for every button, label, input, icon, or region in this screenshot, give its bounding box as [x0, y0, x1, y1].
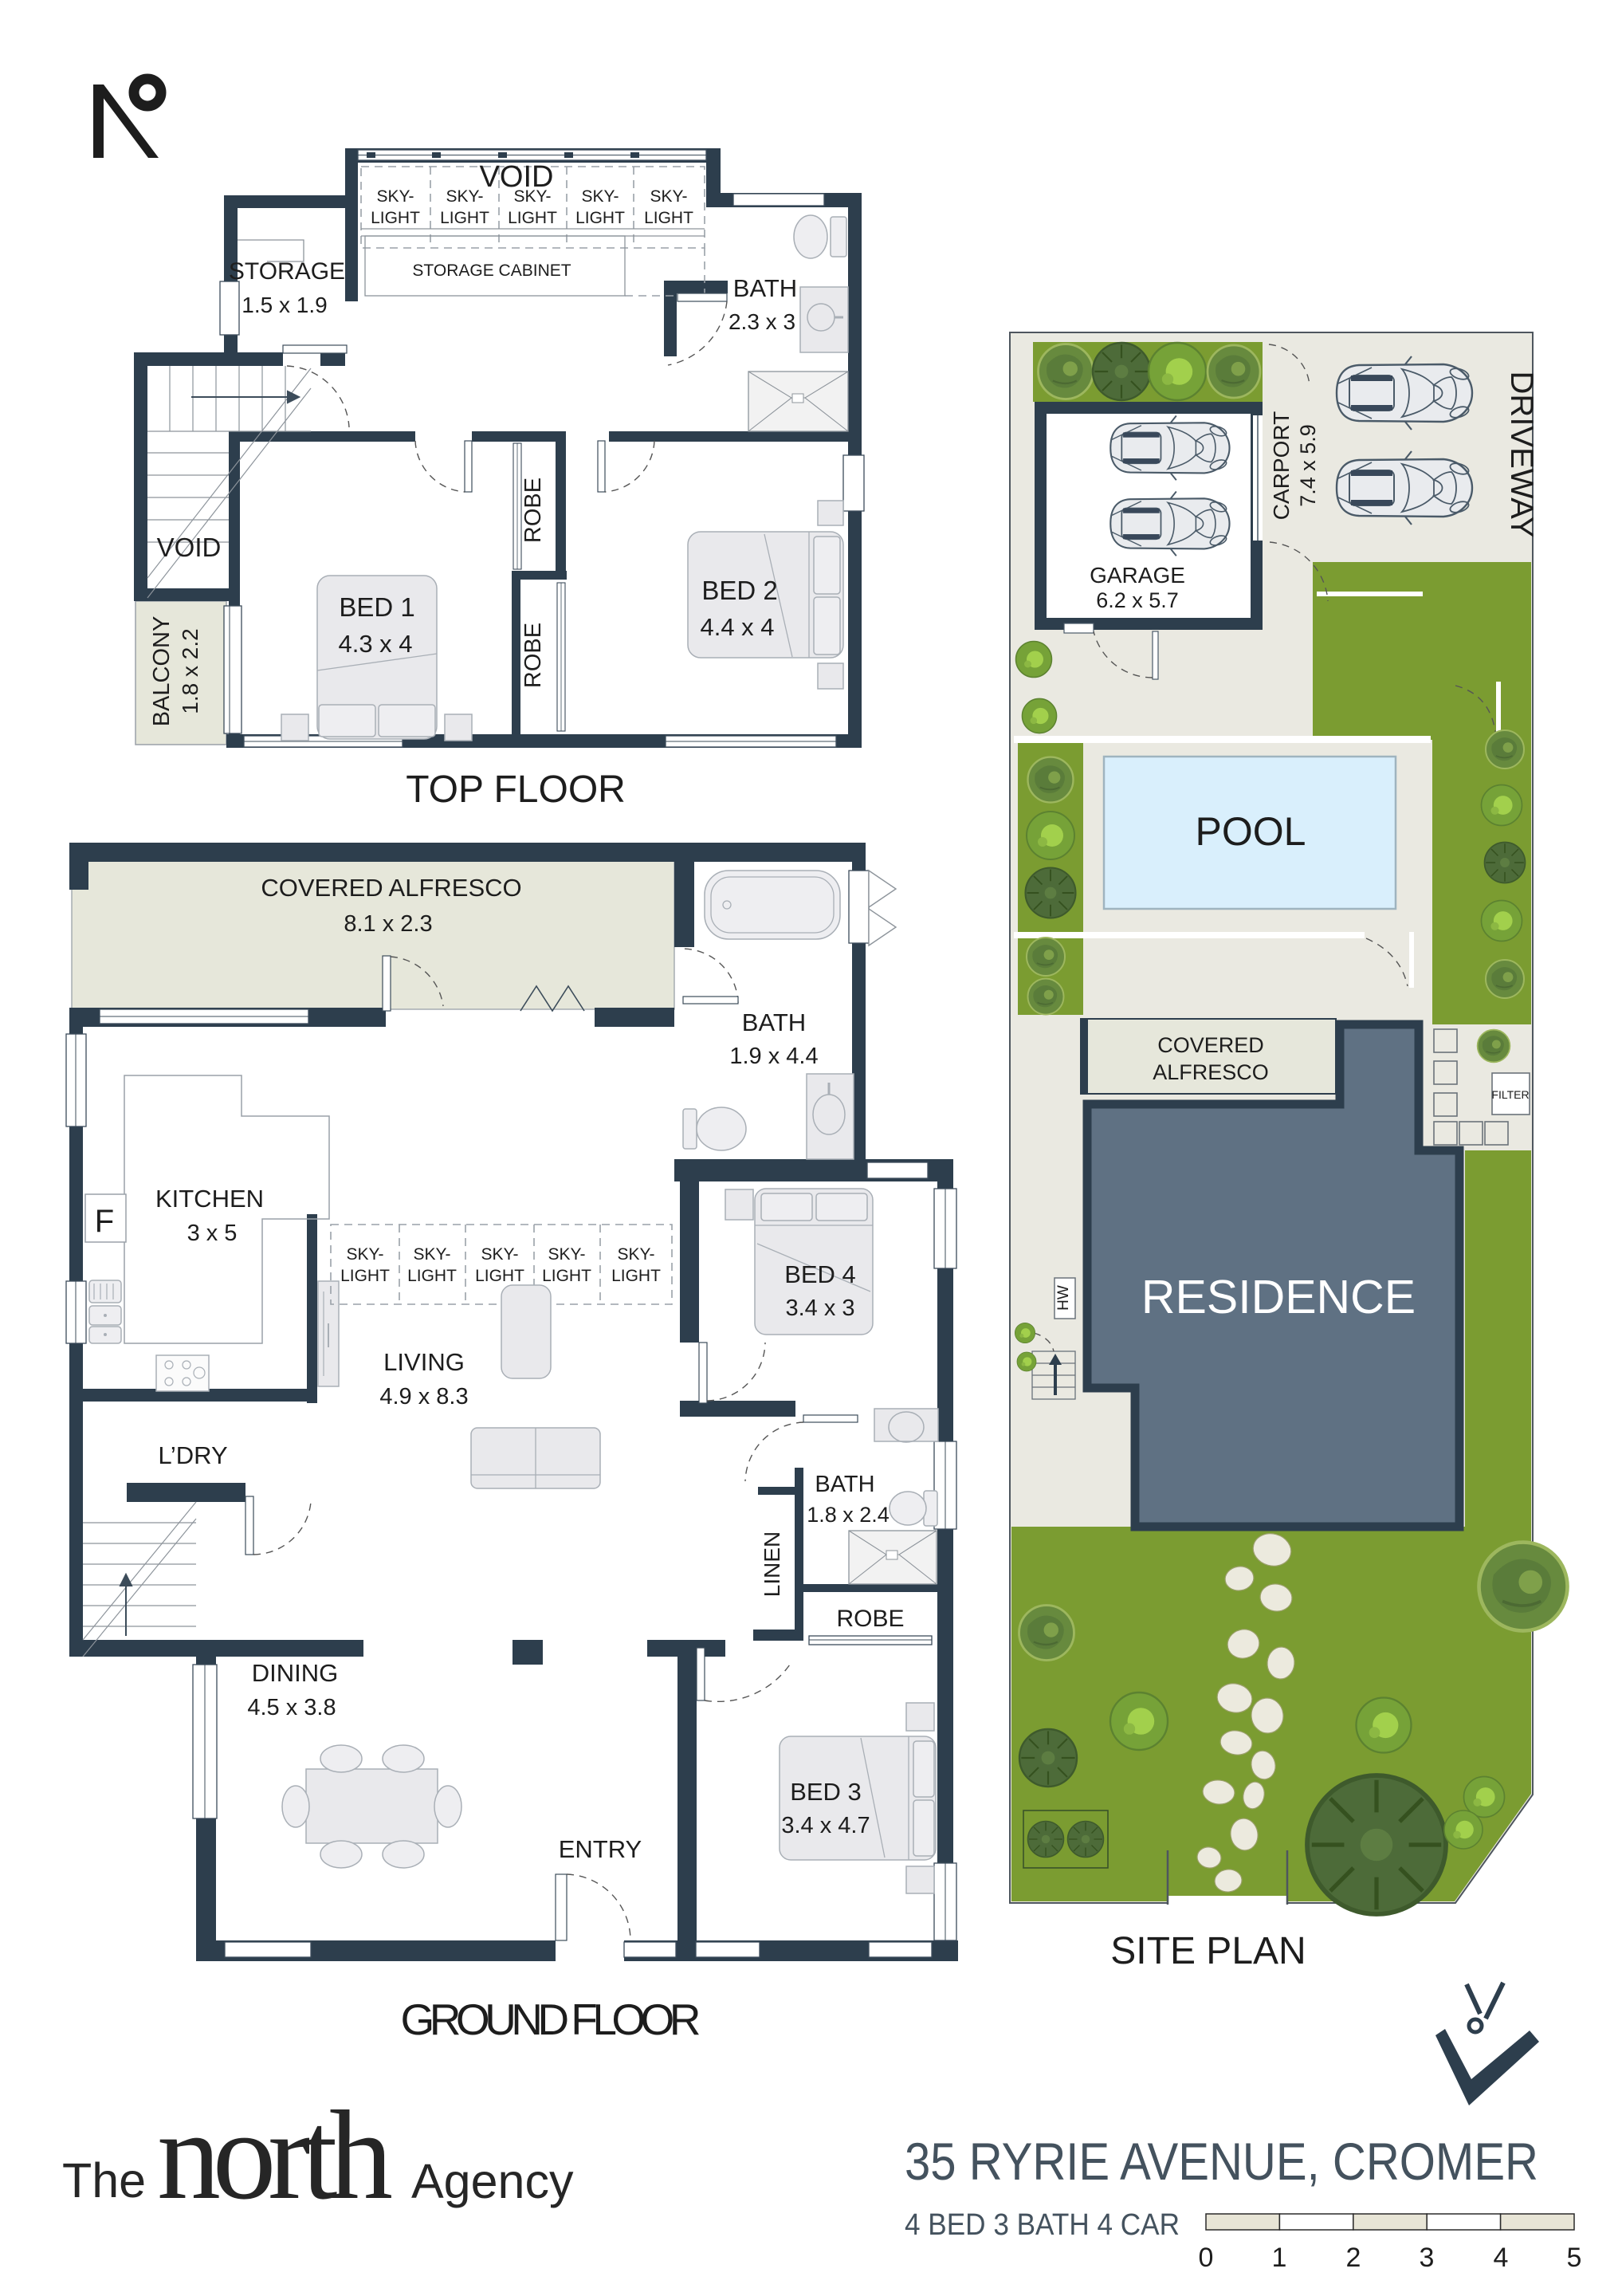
svg-text:LIGHT: LIGHT: [371, 209, 420, 227]
svg-text:FILTER: FILTER: [1491, 1088, 1529, 1101]
svg-text:VOID: VOID: [157, 533, 222, 562]
svg-text:LIVING: LIVING: [383, 1348, 465, 1376]
svg-text:1: 1: [1272, 2243, 1287, 2273]
svg-text:4: 4: [1494, 2243, 1509, 2273]
svg-text:BED 1: BED 1: [339, 592, 414, 622]
svg-text:COVERED ALFRESCO: COVERED ALFRESCO: [261, 874, 521, 902]
svg-text:6.2 x 5.7: 6.2 x 5.7: [1096, 588, 1179, 612]
svg-text:LIGHT: LIGHT: [340, 1267, 390, 1285]
svg-text:4.3 x 4: 4.3 x 4: [338, 630, 412, 658]
svg-text:0: 0: [1199, 2243, 1214, 2273]
svg-text:2: 2: [1346, 2243, 1361, 2273]
svg-text:SKY-: SKY-: [650, 187, 687, 206]
svg-text:SKY-: SKY-: [376, 187, 414, 206]
svg-text:The: The: [62, 2153, 146, 2208]
svg-text:SITE PLAN: SITE PLAN: [1110, 1930, 1306, 1972]
svg-text:ROBE: ROBE: [836, 1606, 904, 1632]
svg-text:7.4 x 5.9: 7.4 x 5.9: [1296, 424, 1320, 507]
svg-text:BED 3: BED 3: [790, 1778, 862, 1806]
svg-text:GROUND FLOOR: GROUND FLOOR: [401, 1995, 701, 2044]
svg-text:BED 4: BED 4: [784, 1260, 856, 1288]
svg-text:HW: HW: [1055, 1285, 1072, 1311]
svg-text:BATH: BATH: [742, 1008, 806, 1036]
svg-text:STORAGE: STORAGE: [229, 258, 345, 285]
svg-text:4.4 x 4: 4.4 x 4: [700, 613, 774, 641]
svg-text:Agency: Agency: [411, 2154, 574, 2208]
svg-text:1.8 x 2.4: 1.8 x 2.4: [807, 1503, 890, 1527]
svg-text:DINING: DINING: [252, 1659, 339, 1687]
svg-text:8.1 x 2.3: 8.1 x 2.3: [344, 911, 432, 937]
svg-text:ENTRY: ENTRY: [559, 1835, 642, 1863]
svg-text:RESIDENCE: RESIDENCE: [1141, 1271, 1416, 1323]
svg-text:3.4 x 4.7: 3.4 x 4.7: [781, 1813, 870, 1838]
svg-text:4.5 x 3.8: 4.5 x 3.8: [247, 1695, 336, 1720]
svg-text:SKY-: SKY-: [513, 187, 551, 206]
svg-text:CARPORT: CARPORT: [1269, 411, 1294, 520]
svg-text:GARAGE: GARAGE: [1090, 563, 1185, 588]
svg-text:LIGHT: LIGHT: [407, 1267, 457, 1285]
svg-text:LIGHT: LIGHT: [575, 209, 625, 227]
svg-text:SKY-: SKY-: [446, 187, 483, 206]
svg-text:LINEN: LINEN: [760, 1531, 784, 1597]
svg-text:SKY-: SKY-: [413, 1245, 450, 1264]
svg-text:35 RYRIE AVENUE, CROMER: 35 RYRIE AVENUE, CROMER: [905, 2132, 1538, 2191]
svg-text:5: 5: [1567, 2243, 1582, 2273]
svg-text:SKY-: SKY-: [481, 1245, 518, 1264]
svg-text:LIGHT: LIGHT: [644, 209, 693, 227]
svg-text:STORAGE CABINET: STORAGE CABINET: [412, 261, 571, 280]
svg-text:TOP FLOOR: TOP FLOOR: [406, 769, 626, 811]
svg-text:BALCONY: BALCONY: [149, 616, 175, 727]
svg-text:LIGHT: LIGHT: [475, 1267, 524, 1285]
svg-text:3: 3: [1420, 2243, 1435, 2273]
svg-text:4 BED 3 BATH 4 CAR: 4 BED 3 BATH 4 CAR: [905, 2208, 1180, 2242]
svg-text:LIGHT: LIGHT: [440, 209, 489, 227]
svg-text:3.4 x 3: 3.4 x 3: [785, 1295, 854, 1321]
svg-text:SKY-: SKY-: [346, 1245, 383, 1264]
svg-text:DRIVEWAY: DRIVEWAY: [1504, 372, 1539, 538]
svg-text:BED 2: BED 2: [701, 576, 777, 605]
svg-text:LIGHT: LIGHT: [611, 1267, 661, 1285]
svg-text:SKY-: SKY-: [581, 187, 619, 206]
svg-text:SKY-: SKY-: [548, 1245, 585, 1264]
svg-text:4.9 x 8.3: 4.9 x 8.3: [379, 1384, 468, 1409]
svg-text:1.8 x 2.2: 1.8 x 2.2: [178, 628, 202, 714]
svg-text:COVERED: COVERED: [1157, 1033, 1264, 1057]
svg-text:1.5 x 1.9: 1.5 x 1.9: [242, 293, 327, 317]
svg-text:LIGHT: LIGHT: [508, 209, 557, 227]
svg-text:1.9 x 4.4: 1.9 x 4.4: [729, 1044, 818, 1069]
svg-text:2.3 x 3: 2.3 x 3: [729, 309, 795, 334]
svg-text:F: F: [95, 1204, 114, 1239]
svg-text:ROBE: ROBE: [520, 623, 546, 688]
svg-text:KITCHEN: KITCHEN: [155, 1185, 264, 1213]
svg-text:ALFRESCO: ALFRESCO: [1153, 1060, 1269, 1084]
svg-text:L’DRY: L’DRY: [158, 1441, 227, 1469]
svg-text:SKY-: SKY-: [617, 1245, 654, 1264]
svg-text:3 x 5: 3 x 5: [187, 1221, 238, 1246]
svg-text:POOL: POOL: [1196, 809, 1306, 854]
svg-text:BATH: BATH: [733, 274, 797, 302]
svg-text:north: north: [157, 2084, 393, 2226]
svg-text:BATH: BATH: [815, 1472, 874, 1497]
svg-text:LIGHT: LIGHT: [542, 1267, 591, 1285]
svg-text:ROBE: ROBE: [520, 478, 546, 543]
